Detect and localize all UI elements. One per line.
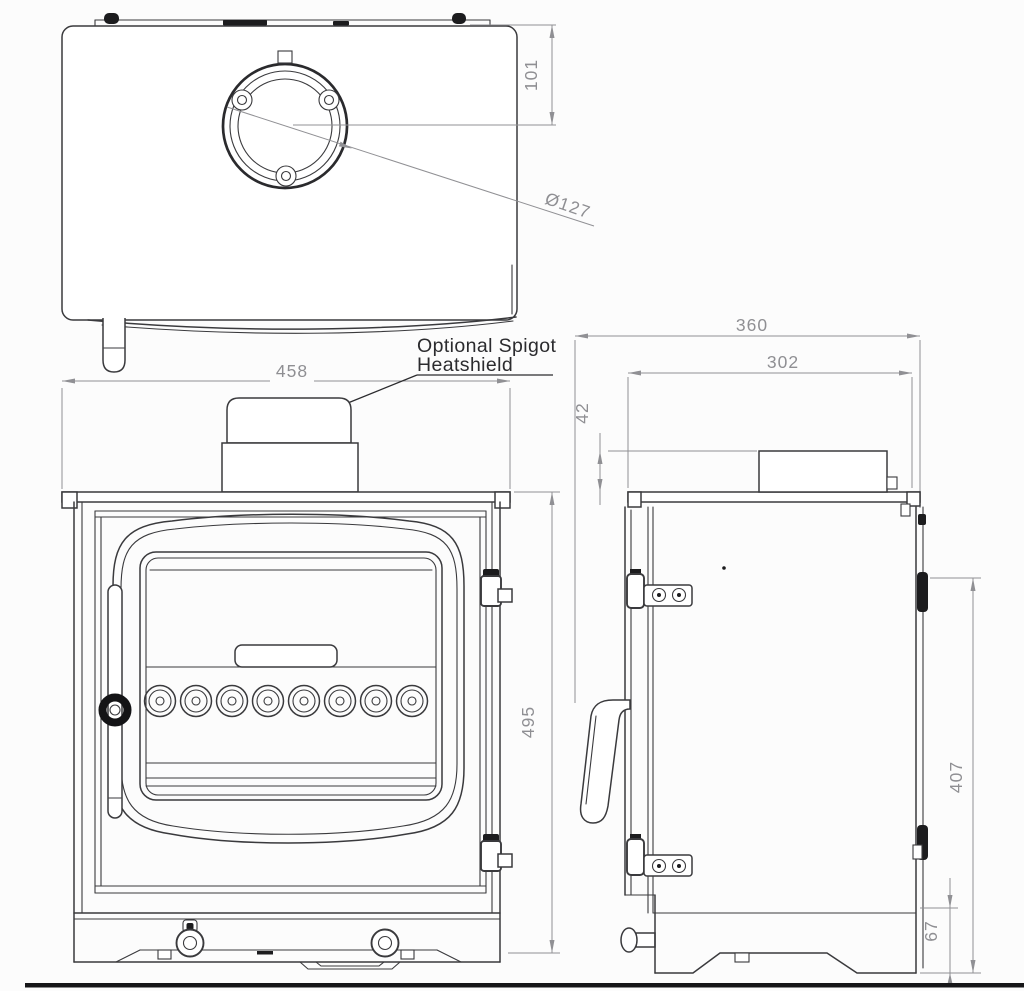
flue-screw-hole [276, 166, 296, 186]
hinge-pin-top-view-right [452, 13, 466, 24]
dim-label-spigot-height: 42 [572, 402, 592, 423]
spigot-heatshield [222, 398, 358, 492]
rear-edge-strip [95, 13, 490, 26]
air-control-knob-right [372, 930, 399, 957]
door-handle-top-view [103, 318, 125, 372]
top-view: Ø127 101 [62, 13, 594, 372]
dim-label-overall-height: 495 [518, 706, 538, 738]
dim-label-flue-centre-offset: 101 [521, 59, 541, 91]
door-handle-lever [581, 700, 630, 823]
air-vent [217, 686, 248, 717]
airwash-handle-plate [235, 645, 337, 667]
rear-bracket-top [917, 572, 928, 612]
air-vent-row [145, 686, 428, 717]
door-handle [103, 585, 128, 818]
air-vent [361, 686, 392, 717]
dim-label-overall-depth: 360 [736, 315, 768, 335]
floor-line [25, 983, 1024, 988]
flue-screw-hole [319, 90, 339, 110]
spigot-height-dimension: 42 [572, 402, 757, 505]
hinge-bottom-side [627, 834, 692, 876]
air-control-knob-left [177, 920, 204, 957]
side-view: 360 302 42 [572, 315, 981, 984]
dim-label-overall-width: 458 [276, 361, 308, 381]
door-frame-outer [113, 514, 464, 843]
top-plate-side [628, 492, 920, 516]
air-vent [181, 686, 212, 717]
air-vent [253, 686, 284, 717]
riddling-knob [621, 928, 655, 952]
air-vent [325, 686, 356, 717]
dim-label-rear-panel-height: 407 [946, 761, 966, 793]
hinge-pin-top-view-left [104, 13, 119, 24]
base-plinth [74, 913, 500, 969]
air-vent [145, 686, 176, 717]
base-height-dimension: 67 [920, 878, 981, 984]
flue-locating-tab [278, 51, 292, 63]
rear-height-dimension: 407 [930, 578, 981, 973]
air-vent [289, 686, 320, 717]
side-body [625, 507, 926, 973]
hinge-top [481, 569, 512, 606]
annotation-line2: Heatshield [417, 354, 513, 376]
spigot-heatshield-annotation: Optional Spigot Heatshield [330, 335, 557, 412]
hinge-top-side [627, 569, 692, 608]
dim-label-top-plate-depth: 302 [767, 352, 799, 372]
door-panel [95, 511, 486, 893]
spigot-heatshield-side [759, 451, 897, 492]
height-dimension: 495 [508, 492, 560, 953]
base-side [655, 895, 916, 973]
dim-label-base-height: 67 [921, 920, 941, 941]
flue-screw-hole [232, 90, 252, 110]
front-view: 458 Optional Spigot Heatshield [62, 335, 560, 969]
drawing-canvas: Ø127 101 458 Optional Spigot Heatshield [0, 0, 1024, 991]
top-plate [62, 492, 510, 508]
stove-technical-drawing: Ø127 101 458 Optional Spigot Heatshield [0, 0, 1024, 991]
air-vent [397, 686, 428, 717]
hinge-bottom [481, 834, 512, 871]
